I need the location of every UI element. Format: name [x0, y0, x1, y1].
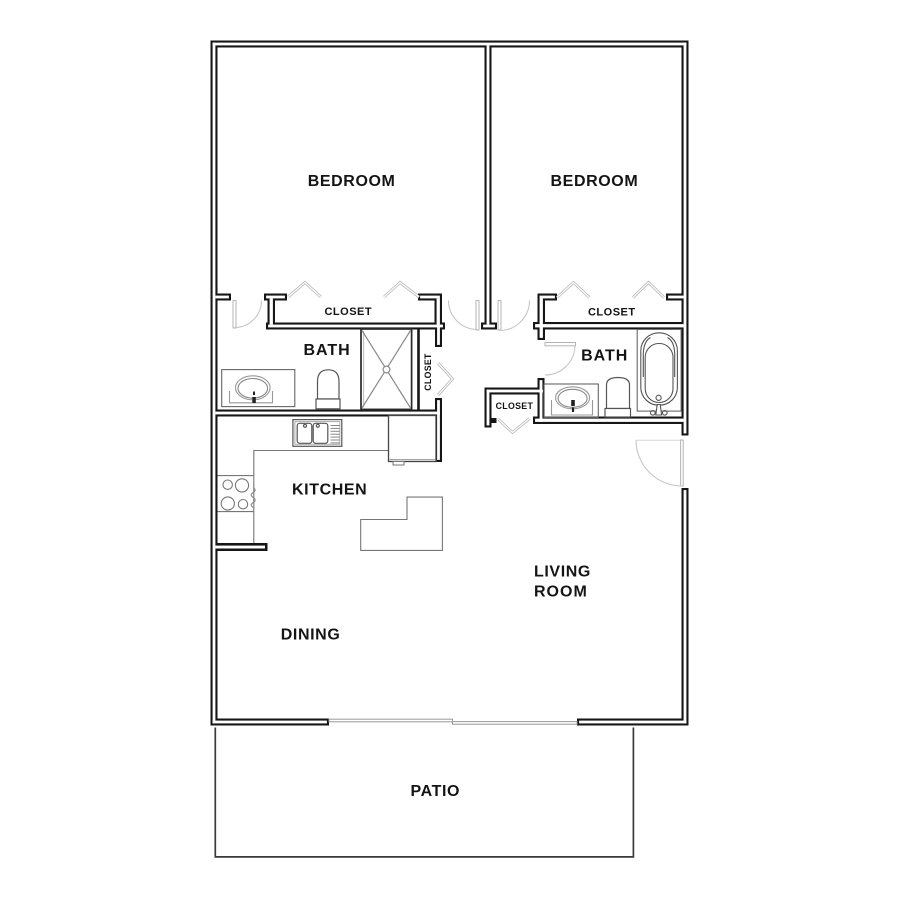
svg-text:BATH: BATH [303, 342, 350, 359]
svg-text:CLOSET: CLOSET [423, 353, 433, 391]
svg-text:LIVING: LIVING [534, 564, 591, 581]
svg-text:PATIO: PATIO [411, 783, 461, 800]
svg-text:KITCHEN: KITCHEN [292, 482, 367, 499]
svg-text:BATH: BATH [581, 348, 628, 365]
svg-text:ROOM: ROOM [534, 583, 588, 600]
svg-text:CLOSET: CLOSET [324, 306, 372, 318]
svg-text:DINING: DINING [281, 627, 341, 644]
svg-text:BEDROOM: BEDROOM [551, 173, 639, 190]
svg-text:CLOSET: CLOSET [588, 306, 636, 318]
svg-text:BEDROOM: BEDROOM [308, 173, 396, 190]
svg-text:CLOSET: CLOSET [496, 401, 534, 411]
